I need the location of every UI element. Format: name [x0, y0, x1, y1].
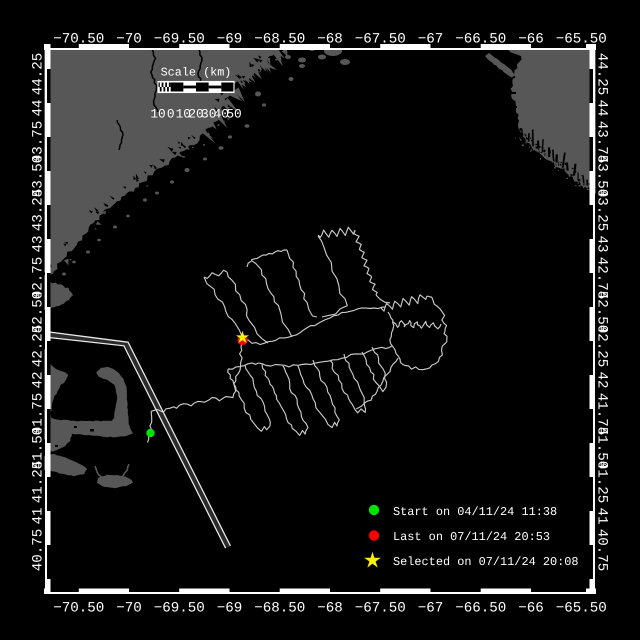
svg-text:10: 10: [150, 107, 165, 122]
svg-text:−68: −68: [317, 601, 343, 617]
svg-text:41.25: 41.25: [594, 461, 610, 504]
svg-text:−69.50: −69.50: [154, 601, 205, 617]
svg-text:Scale (km): Scale (km): [161, 66, 232, 80]
svg-text:−70.50: −70.50: [53, 601, 104, 617]
svg-text:42.25: 42.25: [594, 325, 610, 368]
svg-text:43: 43: [31, 235, 47, 252]
svg-text:−67: −67: [418, 32, 444, 48]
svg-text:−69.50: −69.50: [154, 32, 205, 48]
svg-text:Selected on 07/11/24 20:08: Selected on 07/11/24 20:08: [393, 555, 579, 569]
svg-text:43.25: 43.25: [594, 189, 610, 232]
svg-text:−70: −70: [116, 601, 142, 617]
svg-text:43: 43: [594, 235, 610, 252]
svg-text:44: 44: [594, 99, 610, 116]
svg-text:44.25: 44.25: [594, 53, 610, 96]
svg-text:−67: −67: [418, 601, 444, 617]
svg-text:−70: −70: [116, 32, 142, 48]
svg-text:−69: −69: [217, 32, 243, 48]
svg-text:44: 44: [31, 99, 47, 116]
svg-text:44.25: 44.25: [31, 53, 47, 96]
svg-text:Start on 04/11/24 11:38: Start on 04/11/24 11:38: [393, 505, 557, 519]
svg-text:42: 42: [31, 371, 47, 388]
svg-text:−66.50: −66.50: [455, 601, 506, 617]
svg-text:41: 41: [31, 507, 47, 524]
svg-text:−68.50: −68.50: [254, 601, 305, 617]
svg-text:−68.50: −68.50: [254, 32, 305, 48]
svg-text:−65.50: −65.50: [556, 32, 607, 48]
svg-text:41.25: 41.25: [31, 461, 47, 504]
svg-text:40.75: 40.75: [594, 529, 610, 572]
svg-text:50: 50: [226, 107, 241, 122]
svg-text:40.75: 40.75: [31, 529, 47, 572]
svg-text:43.25: 43.25: [31, 189, 47, 232]
svg-text:42: 42: [594, 371, 610, 388]
svg-text:−70.50: −70.50: [53, 32, 104, 48]
svg-text:−66: −66: [518, 32, 544, 48]
svg-text:−66: −66: [518, 601, 544, 617]
svg-text:42.25: 42.25: [31, 325, 47, 368]
svg-text:−68: −68: [317, 32, 343, 48]
svg-text:Last on 07/11/24 20:53: Last on 07/11/24 20:53: [393, 530, 550, 544]
svg-text:−69: −69: [217, 601, 243, 617]
svg-text:41: 41: [594, 507, 610, 524]
svg-text:−67.50: −67.50: [355, 601, 406, 617]
svg-text:−65.50: −65.50: [556, 601, 607, 617]
svg-text:−67.50: −67.50: [355, 32, 406, 48]
svg-text:−66.50: −66.50: [455, 32, 506, 48]
svg-text:0: 0: [167, 107, 175, 122]
